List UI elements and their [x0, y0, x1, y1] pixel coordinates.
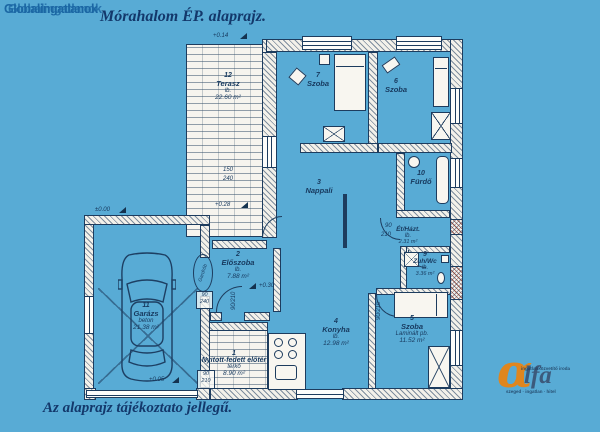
door-dim: 90/210: [231, 292, 237, 310]
bed-pillow-line: [436, 294, 437, 316]
window: [396, 36, 442, 50]
level-flag-icon: [249, 283, 256, 289]
hob-burner: [274, 338, 283, 347]
window: [302, 36, 352, 50]
level-flag-icon: [172, 377, 179, 383]
door-dim: 90: [385, 223, 392, 229]
room-label-zuhwc: 9 Zuh/Wc lb. 3.36 m²: [377, 251, 473, 277]
shelf: [343, 194, 347, 248]
level-mark: ±0.00: [95, 207, 110, 213]
garage-door: [86, 390, 198, 398]
room-label-garazs: 11 Garázs beton 21.38 m²: [98, 302, 194, 331]
room-label-ethazt: Ét/Házt. lb. 2.31 m²: [360, 226, 456, 245]
level-mark: +0.14: [213, 33, 228, 39]
hob-burner: [288, 350, 297, 359]
room-label-eloszoba: 2 Előszoba lb. 7.88 m²: [190, 251, 286, 280]
wall-segment: [201, 322, 268, 331]
window: [262, 136, 277, 168]
door-arc: [216, 286, 242, 312]
wall-segment: [84, 215, 210, 225]
door-dim: 90/210: [376, 302, 382, 320]
room-label-terasz: 12 Terasz lb. 22.60 m²: [180, 72, 276, 101]
level-flag-icon: [119, 207, 126, 213]
level-mark: +0.28: [215, 202, 230, 208]
wall-segment: [196, 388, 210, 400]
window-dim: 240: [223, 176, 233, 182]
level-flag-icon: [240, 33, 247, 39]
level-mark: +0.30: [259, 283, 274, 289]
page-title: Mórahalom ÉP. alaprajz.: [100, 8, 266, 26]
alfa-logo-tagline: ingatlanközvetítő iroda: [521, 366, 570, 371]
wall-segment: [212, 240, 267, 249]
terrace-door: [296, 389, 344, 399]
alfa-logo-address: szeged · ingatlan · hitel: [506, 389, 556, 394]
wardrobe: [431, 112, 451, 140]
wardrobe: [428, 346, 450, 388]
wall-segment: [210, 312, 222, 321]
level-flag-icon: [241, 202, 248, 208]
room-label-szoba6: 6 Szoba: [348, 78, 444, 94]
wall-segment: [244, 312, 270, 321]
bed-pillow-line: [435, 68, 447, 69]
bed-pillow-line: [336, 66, 364, 67]
room-label-eloter: 1 Nyitott-fedett előtér térkő 8.90 m²: [186, 350, 282, 377]
nightstand: [319, 54, 330, 65]
wall-segment: [342, 388, 463, 400]
window: [450, 88, 463, 124]
watermark-text-echo: Globalingatlanok: [8, 2, 101, 16]
page-caption: Az alaprajz tájékoztato jellegű.: [43, 400, 232, 417]
room-label-nappali: 3 Nappali: [271, 179, 367, 195]
window-dim: 150: [223, 167, 233, 173]
door-dim-box: 90 240: [196, 291, 213, 309]
wall-segment: [368, 52, 378, 153]
level-mark: +0.05: [149, 377, 164, 383]
door-dim: 210: [381, 232, 391, 238]
wall-segment: [378, 143, 452, 153]
window: [84, 296, 94, 334]
table: [323, 126, 345, 142]
washbasin: [408, 156, 420, 168]
desk: [382, 56, 401, 73]
floorplan-page: Globalingatlanok Globalingatlanok Móraha…: [0, 0, 600, 432]
wall-segment: [300, 143, 378, 153]
wall-segment: [396, 210, 450, 218]
room-label-furdo: 10 Fürdő: [373, 170, 469, 186]
